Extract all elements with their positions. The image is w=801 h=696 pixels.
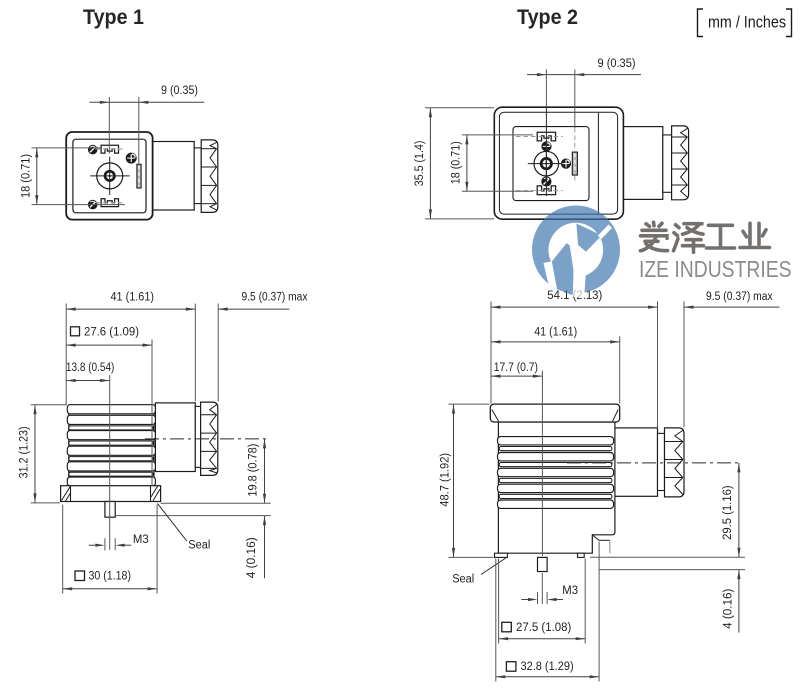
svg-text:9 (0.35): 9 (0.35) <box>598 58 636 70</box>
svg-text:27.5 (1.08): 27.5 (1.08) <box>516 622 571 634</box>
svg-text:Seal: Seal <box>188 539 210 551</box>
svg-text:9 (0.35): 9 (0.35) <box>161 85 198 97</box>
svg-text:M3: M3 <box>133 534 149 546</box>
svg-text:29.5 (1.16): 29.5 (1.16) <box>722 485 734 540</box>
svg-text:mm / Inches: mm / Inches <box>708 13 786 32</box>
svg-text:48.7 (1.92): 48.7 (1.92) <box>440 453 452 507</box>
svg-text:27.6 (1.09): 27.6 (1.09) <box>84 326 139 338</box>
svg-text:41 (1.61): 41 (1.61) <box>534 327 577 339</box>
svg-text:IZE INDUSTRIES: IZE INDUSTRIES <box>639 256 792 282</box>
svg-text:19.8 (0.78): 19.8 (0.78) <box>248 443 260 496</box>
svg-text:9.5 (0.37) max: 9.5 (0.37) max <box>706 291 773 303</box>
svg-text:9.5 (0.37) max: 9.5 (0.37) max <box>242 291 308 303</box>
svg-text:35.5 (1.4): 35.5 (1.4) <box>414 140 426 186</box>
svg-text:Type 2: Type 2 <box>517 6 578 29</box>
svg-text:41 (1.61): 41 (1.61) <box>111 291 155 303</box>
svg-text:4 (0.16): 4 (0.16) <box>722 588 734 628</box>
svg-text:4 (0.16): 4 (0.16) <box>246 537 258 578</box>
svg-text:31.2 (1.23): 31.2 (1.23) <box>18 426 30 478</box>
svg-text:13.8 (0.54): 13.8 (0.54) <box>66 362 115 374</box>
svg-text:Type 1: Type 1 <box>83 6 144 29</box>
svg-text:32.8 (1.29): 32.8 (1.29) <box>521 661 574 673</box>
svg-text:18 (0.71): 18 (0.71) <box>20 154 32 198</box>
svg-text:Seal: Seal <box>452 573 474 585</box>
svg-text:M3: M3 <box>562 585 578 597</box>
svg-text:30 (1.18): 30 (1.18) <box>89 571 132 583</box>
svg-text:18 (0.71): 18 (0.71) <box>450 141 462 184</box>
svg-text:17.7 (0.7): 17.7 (0.7) <box>494 362 538 374</box>
